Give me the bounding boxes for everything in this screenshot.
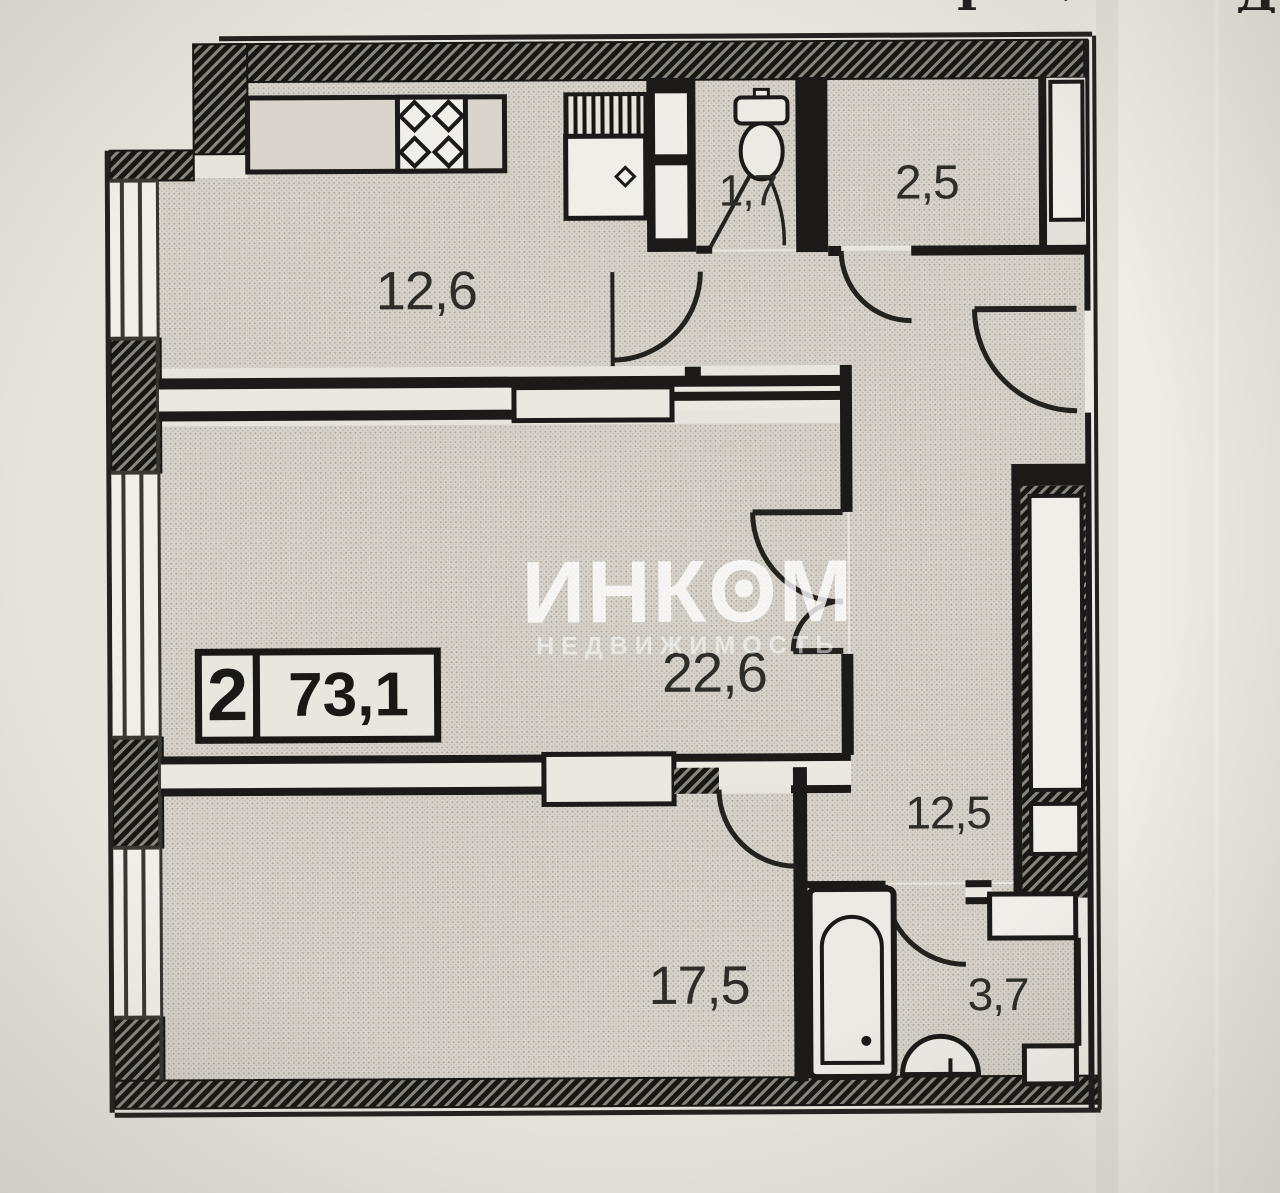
floor-plan-photo: 12,6 1,7 2,5 22,6 12,5 17,5 3,7 2 73,1 И…	[0, 0, 1280, 1193]
photo-vignette	[0, 0, 1280, 1193]
